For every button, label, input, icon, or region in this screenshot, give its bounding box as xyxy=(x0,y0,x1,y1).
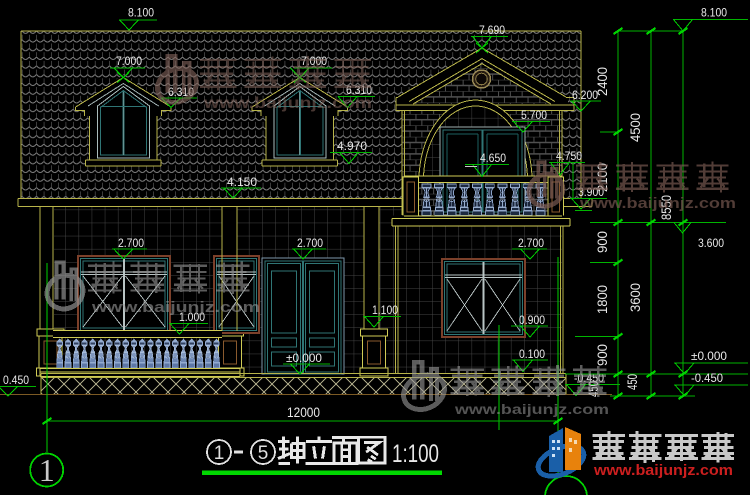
svg-text:7.690: 7.690 xyxy=(479,23,505,37)
svg-text:2.700: 2.700 xyxy=(297,236,323,250)
svg-text:5: 5 xyxy=(258,443,269,464)
svg-text:4.970: 4.970 xyxy=(337,139,367,153)
svg-text:1: 1 xyxy=(214,443,225,464)
svg-text:4500: 4500 xyxy=(628,113,643,142)
svg-text:1.100: 1.100 xyxy=(372,303,398,317)
svg-text:900: 900 xyxy=(595,231,610,253)
svg-text:5.700: 5.700 xyxy=(521,108,547,122)
svg-text:www.baijunjz.com: www.baijunjz.com xyxy=(593,462,733,479)
svg-text:900: 900 xyxy=(595,344,610,366)
svg-text:7.000: 7.000 xyxy=(116,54,142,68)
svg-text:8.100: 8.100 xyxy=(128,6,154,20)
svg-text:1: 1 xyxy=(39,452,55,488)
svg-text:12000: 12000 xyxy=(287,405,320,420)
svg-text:www.baijunjz.com: www.baijunjz.com xyxy=(579,195,736,212)
svg-text:www.baijunjz.com: www.baijunjz.com xyxy=(454,401,609,417)
svg-text:www.baijunjz.com: www.baijunjz.com xyxy=(203,95,372,112)
svg-text:0.450: 0.450 xyxy=(3,373,29,387)
svg-text:±0.000: ±0.000 xyxy=(286,351,322,365)
svg-text:4.150: 4.150 xyxy=(227,175,257,189)
svg-text:0.900: 0.900 xyxy=(519,313,545,327)
svg-text:3600: 3600 xyxy=(628,283,643,312)
svg-text:3.600: 3.600 xyxy=(698,236,724,250)
svg-text:±0.000: ±0.000 xyxy=(691,349,727,363)
svg-text:1800: 1800 xyxy=(595,285,610,314)
svg-text:0.100: 0.100 xyxy=(519,347,545,361)
svg-text:4.650: 4.650 xyxy=(480,151,506,165)
svg-text:2400: 2400 xyxy=(595,67,610,96)
svg-text:1:100: 1:100 xyxy=(392,440,439,468)
svg-text:2.700: 2.700 xyxy=(118,236,144,250)
svg-text:8.100: 8.100 xyxy=(701,6,727,20)
svg-text:2.700: 2.700 xyxy=(518,236,544,250)
svg-text:www.baijunjz.com: www.baijunjz.com xyxy=(91,299,260,316)
svg-text:4.750: 4.750 xyxy=(556,149,582,163)
svg-text:-0.450: -0.450 xyxy=(691,371,723,385)
svg-text:450: 450 xyxy=(625,374,640,390)
